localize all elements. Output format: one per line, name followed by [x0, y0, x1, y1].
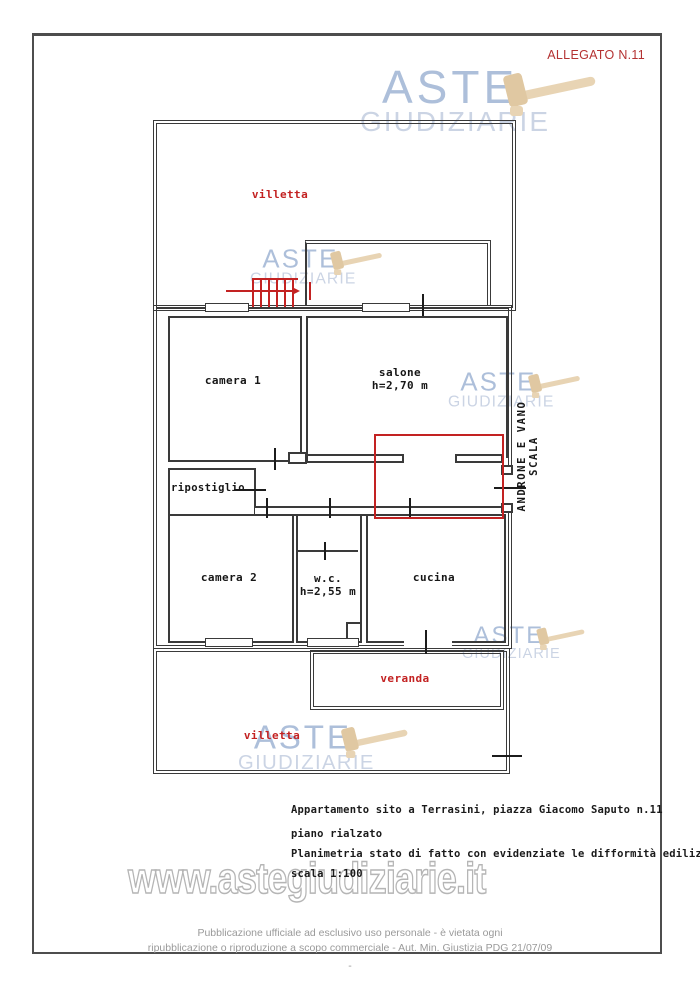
room-label-wc: w.c. h=2,55 m — [288, 572, 368, 598]
door-opening — [503, 473, 513, 505]
room-label-camera2: camera 2 — [168, 571, 290, 584]
room-camera1 — [168, 316, 302, 462]
document-page: ALLEGATO N.11 ASTE GIUDIZIARIE ASTE GIUD… — [0, 0, 700, 990]
caption-line-4: scala 1:100 — [291, 868, 363, 880]
caption-line-2: piano rialzato — [291, 828, 382, 840]
stairs-direction-line — [226, 290, 296, 292]
door-tick — [274, 448, 276, 470]
caption-line-3: Planimetria stato di fatto con evidenzia… — [291, 848, 700, 860]
door-opening — [404, 637, 452, 647]
villetta-bottom-outline — [153, 648, 510, 774]
window — [205, 303, 249, 312]
door-tick — [425, 630, 427, 654]
door-tick — [492, 755, 522, 757]
window — [205, 638, 253, 647]
room-label-veranda: veranda — [340, 672, 470, 685]
allegato-label: ALLEGATO N.11 — [440, 48, 645, 62]
wall-segment — [288, 452, 307, 464]
room-label-salone: salone h=2,70 m — [330, 366, 470, 392]
door-tick — [234, 489, 266, 491]
window — [307, 638, 359, 647]
room-label-villetta-top: villetta — [230, 188, 330, 201]
stairwell-label: ANDRONE E VANO SCALA — [516, 381, 540, 531]
footer-line-1: Pubblicazione ufficiale ad esclusivo uso… — [0, 927, 700, 939]
door-tick — [329, 498, 331, 518]
wc-divider-wall — [296, 550, 358, 552]
stairs-arrow-icon — [292, 287, 300, 295]
door-tick — [422, 294, 424, 316]
terrace-outline — [305, 240, 491, 306]
footer-dash: - — [0, 960, 700, 972]
room-label-camera1: camera 1 — [168, 374, 298, 387]
room-label-villetta-bottom: villetta — [222, 729, 322, 742]
door-tick — [324, 542, 326, 560]
caption-line-1: Appartamento sito a Terrasini, piazza Gi… — [291, 804, 663, 816]
red-highlight-rect — [374, 434, 504, 519]
window — [362, 303, 410, 312]
door-tick — [266, 498, 268, 518]
room-label-cucina: cucina — [366, 571, 502, 584]
footer-line-2: ripubblicazione o riproduzione a scopo c… — [0, 942, 700, 954]
stairs-edge-line — [309, 282, 311, 300]
